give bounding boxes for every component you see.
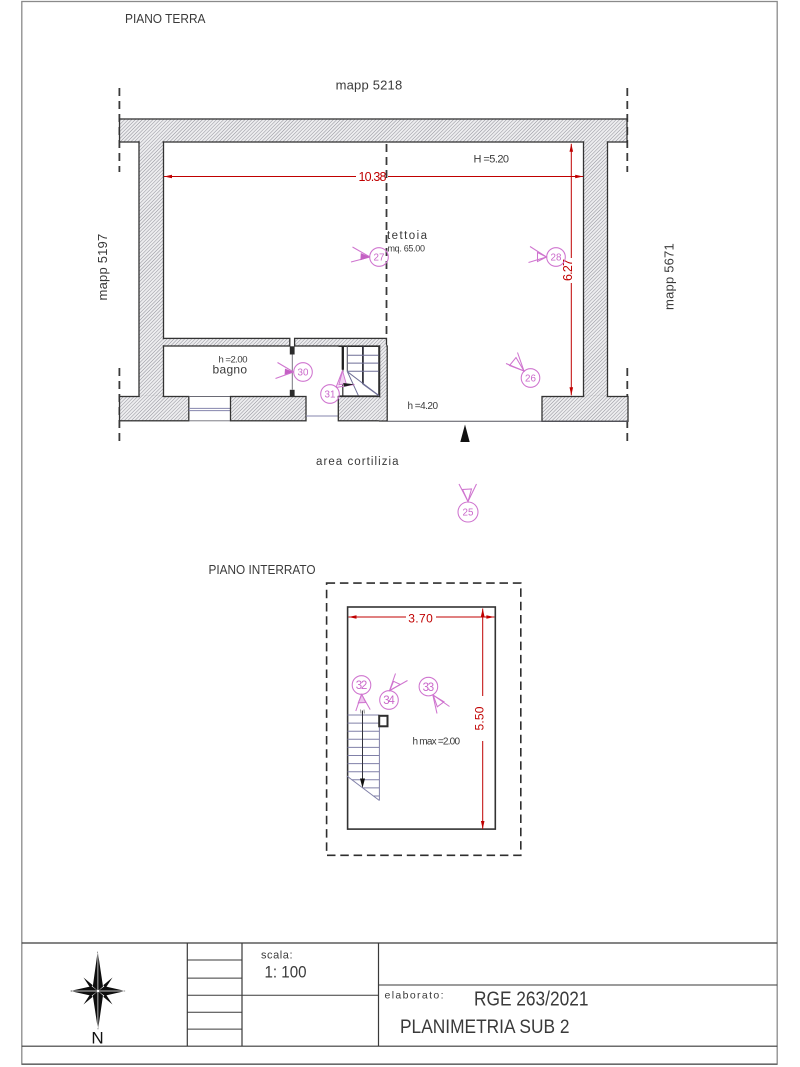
svg-text:H =5.20: H =5.20 <box>474 153 510 165</box>
svg-text:27: 27 <box>374 252 385 263</box>
svg-text:30: 30 <box>298 367 309 378</box>
svg-text:bagno: bagno <box>213 363 248 377</box>
svg-text:N: N <box>91 1029 103 1048</box>
svg-text:25: 25 <box>463 507 474 518</box>
svg-text:10.38: 10.38 <box>359 170 387 184</box>
svg-text:26: 26 <box>525 373 536 384</box>
svg-text:33: 33 <box>423 682 435 694</box>
svg-text:mq. 65.00: mq. 65.00 <box>388 244 426 254</box>
svg-text:RGE 263/2021: RGE 263/2021 <box>474 989 589 1011</box>
svg-text:5.50: 5.50 <box>473 706 487 730</box>
svg-text:area cortilizia: area cortilizia <box>316 456 399 468</box>
svg-text:PIANO INTERRATO: PIANO INTERRATO <box>209 562 316 577</box>
svg-text:mapp 5197: mapp 5197 <box>95 234 110 301</box>
svg-text:elaborato:: elaborato: <box>385 990 444 1002</box>
svg-text:h =4.20: h =4.20 <box>408 401 439 412</box>
svg-text:32: 32 <box>356 680 368 692</box>
svg-text:1: 100: 1: 100 <box>265 963 307 982</box>
svg-text:tettoia: tettoia <box>387 230 428 242</box>
svg-text:mapp 5671: mapp 5671 <box>662 243 677 310</box>
svg-text:PLANIMETRIA SUB 2: PLANIMETRIA SUB 2 <box>400 1016 570 1038</box>
svg-text:PIANO TERRA: PIANO TERRA <box>125 11 206 26</box>
svg-text:31: 31 <box>325 389 336 400</box>
svg-text:scala:: scala: <box>261 950 293 962</box>
svg-text:3.70: 3.70 <box>408 611 433 625</box>
svg-text:h max =2.00: h max =2.00 <box>413 737 461 748</box>
svg-text:mapp 5218: mapp 5218 <box>336 78 403 93</box>
svg-text:28: 28 <box>551 252 562 263</box>
svg-text:34: 34 <box>383 695 395 707</box>
